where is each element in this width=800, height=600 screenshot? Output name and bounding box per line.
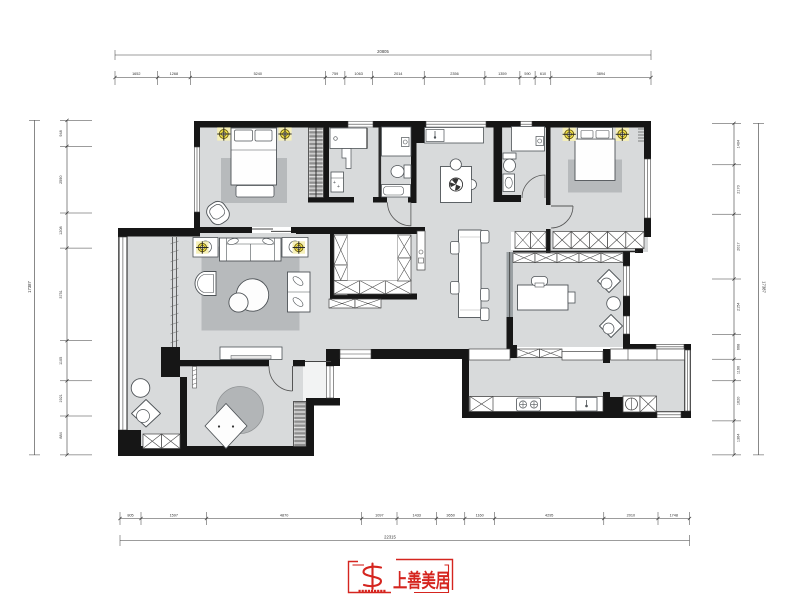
- svg-text:17387: 17387: [27, 281, 32, 293]
- svg-text:1433: 1433: [412, 514, 420, 518]
- svg-text:668: 668: [737, 344, 741, 350]
- svg-text:1620: 1620: [737, 397, 741, 405]
- svg-text:1063: 1063: [354, 72, 362, 76]
- svg-text:17387: 17387: [762, 281, 767, 293]
- svg-text:2590: 2590: [59, 175, 63, 183]
- svg-text:590: 590: [524, 72, 530, 76]
- svg-text:1160: 1160: [476, 514, 484, 518]
- svg-text:1208: 1208: [59, 226, 63, 234]
- svg-text:2010: 2010: [627, 514, 635, 518]
- svg-text:1190: 1190: [737, 366, 741, 374]
- svg-text:20805: 20805: [377, 49, 389, 54]
- svg-text:2014: 2014: [394, 72, 402, 76]
- svg-text:2154: 2154: [737, 303, 741, 311]
- svg-text:2170: 2170: [737, 185, 741, 193]
- svg-text:5240: 5240: [254, 72, 262, 76]
- svg-text:上善美居: 上善美居: [393, 569, 450, 592]
- svg-text:+: +: [333, 180, 336, 186]
- svg-text:1364: 1364: [737, 434, 741, 442]
- svg-text:1921: 1921: [59, 394, 63, 402]
- svg-text:1597: 1597: [170, 514, 178, 518]
- svg-text:1652: 1652: [132, 72, 140, 76]
- svg-text:22315: 22315: [384, 535, 396, 540]
- svg-text:3751: 3751: [59, 290, 63, 298]
- svg-text:4295: 4295: [545, 514, 553, 518]
- svg-text:3650: 3650: [446, 514, 454, 518]
- svg-text:1404: 1404: [737, 140, 741, 148]
- svg-text:1105: 1105: [59, 357, 63, 365]
- svg-text:4870: 4870: [280, 514, 288, 518]
- svg-text:1748: 1748: [670, 514, 678, 518]
- svg-text:2017: 2017: [737, 242, 741, 250]
- svg-text:610: 610: [540, 72, 546, 76]
- svg-text:1359: 1359: [498, 72, 506, 76]
- svg-text:2356: 2356: [450, 72, 458, 76]
- svg-text:884: 884: [59, 432, 63, 438]
- svg-text:1268: 1268: [170, 72, 178, 76]
- svg-text:805: 805: [127, 514, 133, 518]
- svg-text:+: +: [337, 184, 340, 190]
- svg-text:759: 759: [332, 72, 338, 76]
- svg-text:3894: 3894: [597, 72, 605, 76]
- svg-text:1097: 1097: [375, 514, 383, 518]
- svg-text:948: 948: [59, 130, 63, 136]
